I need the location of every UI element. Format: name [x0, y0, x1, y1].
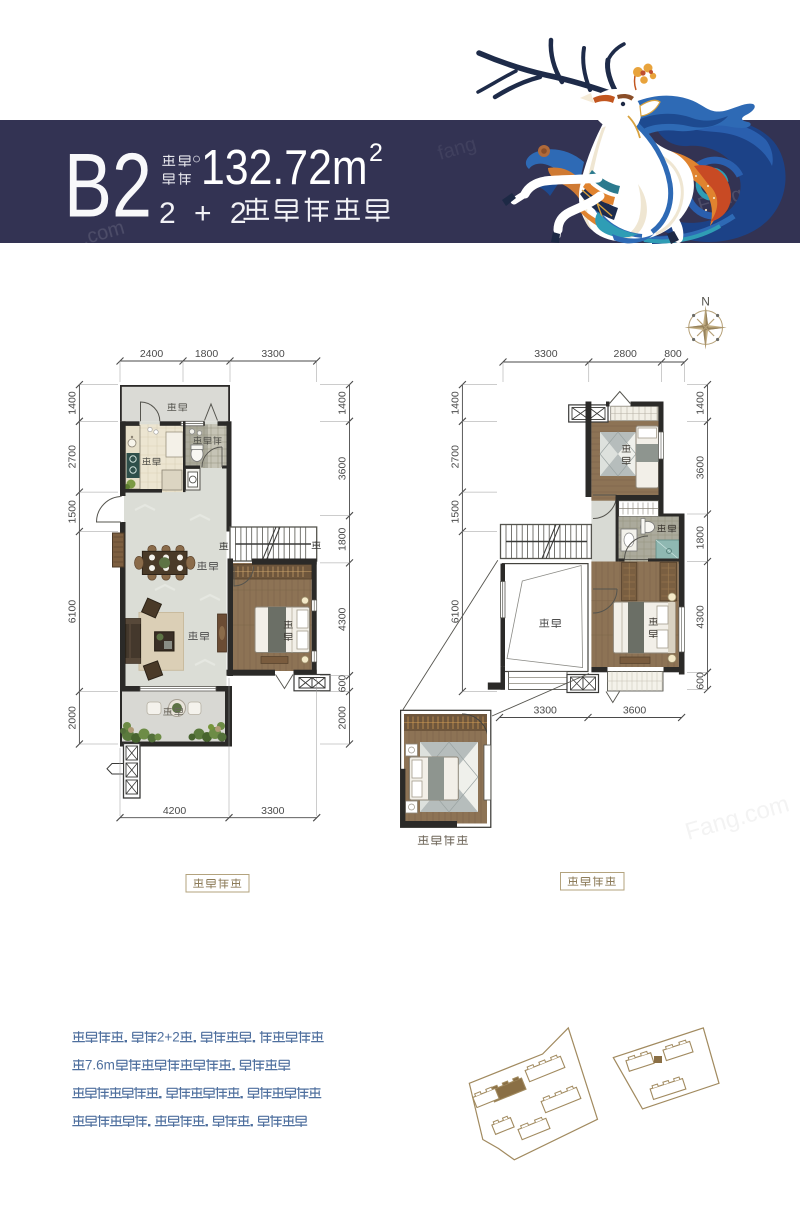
- svg-text:3600: 3600: [623, 705, 647, 717]
- svg-text:1400: 1400: [67, 391, 79, 415]
- svg-text:2+2: 2+2: [157, 1030, 180, 1045]
- svg-text:1500: 1500: [67, 500, 79, 524]
- svg-text:2400: 2400: [140, 348, 164, 360]
- svg-text:1400: 1400: [695, 391, 707, 415]
- svg-text:3300: 3300: [534, 705, 558, 717]
- svg-text:1800: 1800: [195, 348, 219, 360]
- svg-text:2700: 2700: [450, 445, 462, 469]
- svg-text:7.6m: 7.6m: [85, 1058, 115, 1073]
- svg-text:6100: 6100: [450, 600, 462, 624]
- svg-text:3300: 3300: [261, 348, 285, 360]
- svg-text:2000: 2000: [67, 706, 79, 730]
- svg-text:3300: 3300: [534, 348, 558, 360]
- svg-text:600: 600: [695, 672, 707, 690]
- svg-text:1800: 1800: [695, 526, 707, 550]
- svg-text:N: N: [701, 295, 710, 309]
- svg-text:4300: 4300: [695, 605, 707, 629]
- svg-text:800: 800: [664, 348, 682, 360]
- svg-text:1400: 1400: [450, 391, 462, 415]
- svg-text:3600: 3600: [337, 457, 349, 481]
- svg-text:1500: 1500: [450, 500, 462, 524]
- svg-text:3300: 3300: [261, 805, 285, 817]
- svg-text:2700: 2700: [67, 445, 79, 469]
- svg-text:600: 600: [337, 675, 349, 693]
- svg-text:1800: 1800: [337, 527, 349, 551]
- svg-text:2000: 2000: [337, 706, 349, 730]
- svg-text:6100: 6100: [67, 600, 79, 624]
- svg-text:1400: 1400: [337, 391, 349, 415]
- svg-text:4200: 4200: [163, 805, 187, 817]
- svg-text:3600: 3600: [695, 456, 707, 480]
- svg-text:2800: 2800: [614, 348, 638, 360]
- svg-text:4300: 4300: [337, 607, 349, 631]
- svg-text:Fang.com: Fang.com: [682, 790, 792, 845]
